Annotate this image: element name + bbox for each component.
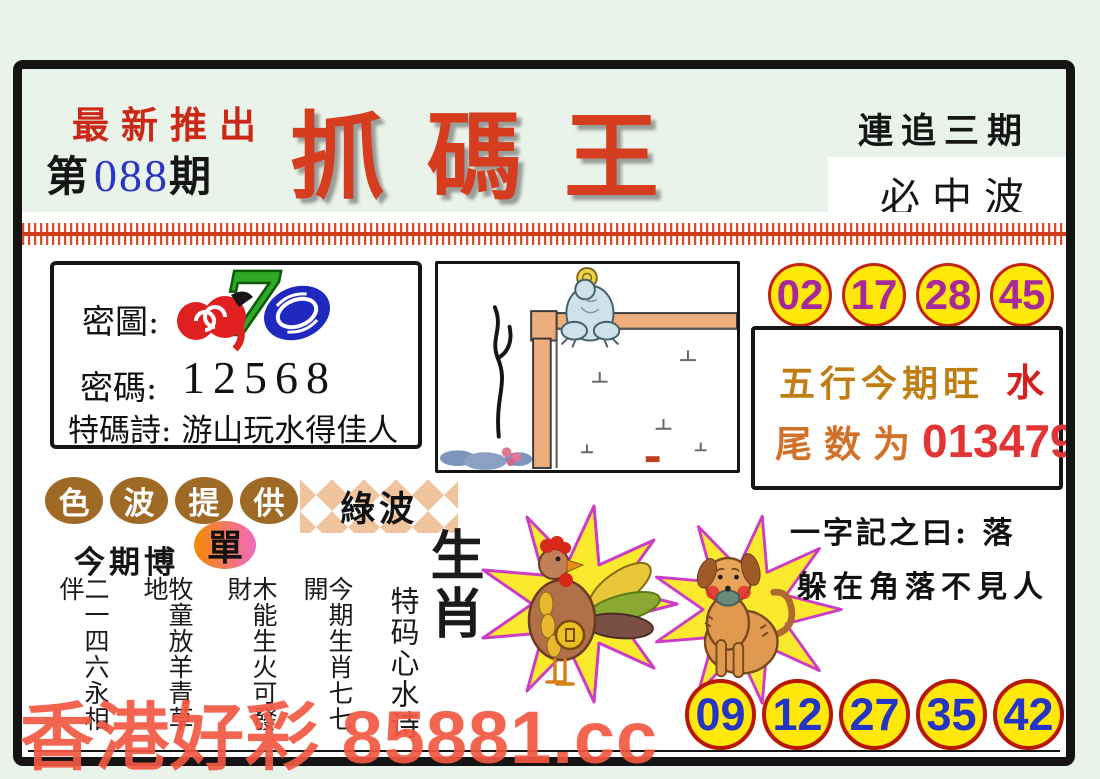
riddle-line-2: 躲在角落不見人: [797, 562, 1049, 606]
promo-text: 最新推出: [72, 95, 268, 149]
flyer-page: 最新推出 第088期 抓碼王 連追三期 必中波 密圖: 7: [0, 0, 1100, 779]
wuxing-info-box: 五行今期旺水 尾数为013479: [751, 326, 1063, 490]
bottom-number-ball: 12: [762, 679, 833, 750]
pipe-elbow: [531, 311, 556, 340]
top-number-ball: 17: [842, 263, 906, 327]
top-number-ball: 45: [990, 263, 1054, 327]
color-wave-oval: 色: [45, 477, 103, 524]
secret-poem-value: 游山玩水得佳人: [181, 413, 398, 449]
tail-line: 尾数为013479: [775, 414, 1075, 468]
secret-code-value: 12568: [182, 351, 337, 404]
issue-prefix: 第: [46, 152, 94, 201]
comb-pattern: [22, 223, 1066, 245]
bottom-number-ball: 42: [993, 679, 1064, 750]
bottom-number-ball: 09: [685, 679, 756, 750]
frog-on-pipe-illustration: [438, 264, 737, 470]
chase-line: 連追三期: [858, 103, 1030, 154]
green-wave-value: 綠波: [340, 481, 418, 532]
secret-poem-label: 特碼詩:: [68, 413, 171, 449]
top-number-ball: 02: [768, 263, 832, 327]
center-picture-box: [435, 261, 740, 473]
tail-value: 013479: [922, 415, 1075, 467]
wuxing-label: 五行今期旺: [779, 363, 984, 405]
page-title: 抓碼王: [290, 81, 701, 218]
flyer-frame: 最新推出 第088期 抓碼王 連追三期 必中波 密圖: 7: [13, 60, 1075, 766]
color-wave-oval: 供: [240, 477, 298, 524]
tail-label: 尾数为: [775, 422, 922, 466]
top-number-ball: 28: [916, 263, 980, 327]
bottom-number-ball: 35: [916, 679, 987, 750]
secret-code-label: 密碼:: [80, 361, 157, 409]
cherries-seven-zero-icon: 7: [169, 255, 339, 359]
bottom-number-row: 09 12 27 35 42: [685, 679, 1064, 750]
color-wave-oval: 波: [110, 477, 168, 524]
wuxing-line: 五行今期旺水: [779, 352, 1044, 407]
secret-poem-line: 特碼詩: 游山玩水得佳人: [68, 405, 398, 450]
comb-divider: [22, 212, 1066, 256]
bottom-number-ball: 27: [839, 679, 910, 750]
top-number-row: 02 17 28 45: [768, 263, 1054, 327]
wuxing-value: 水: [1006, 360, 1044, 405]
pipe-vertical: [533, 339, 551, 468]
issue-suffix: 期: [169, 152, 217, 201]
secret-map-label: 密圖:: [82, 295, 159, 343]
color-wave-ovals: 色 波 提 供: [45, 477, 298, 524]
cherry-swirl-icon: [177, 291, 253, 349]
bet-value-oval: 單: [194, 521, 256, 569]
color-wave-oval: 提: [175, 477, 233, 524]
riddle-line-1: 一字記之曰: 落: [790, 508, 1016, 552]
secret-code-box: 密圖: 7: [50, 261, 422, 449]
watermark-text: 香港好彩 85881.cc: [20, 678, 658, 779]
issue-number: 088: [94, 150, 169, 201]
green-wave-banner: 綠波: [300, 479, 458, 533]
header: 最新推出 第088期 抓碼王 連追三期 必中波: [22, 69, 1066, 212]
zodiac-heading: 生肖: [426, 527, 480, 643]
issue-line: 第088期: [46, 143, 217, 204]
